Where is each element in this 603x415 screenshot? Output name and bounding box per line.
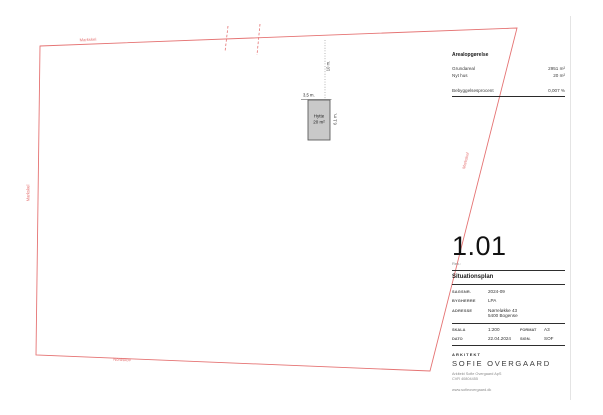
field-label: ADRESSE bbox=[452, 308, 488, 319]
address-line-2: 5400 Bogense bbox=[488, 313, 565, 319]
architect-block: ARKITEKT SOFIE OVERGAARD Arkitekt Sofie … bbox=[452, 352, 565, 392]
field-label: DATO bbox=[452, 336, 488, 342]
area-result-label: Bebyggelsesprocent bbox=[452, 87, 494, 94]
field-label: BYGHERRE bbox=[452, 298, 488, 304]
revision-label: Rev.: bbox=[452, 261, 565, 266]
boundary-tick-2 bbox=[257, 24, 260, 55]
drawing-title: Situationsplan bbox=[452, 271, 565, 284]
boundary-label-right: Markskel bbox=[461, 152, 470, 170]
building-area-label: 20 m² bbox=[313, 120, 325, 125]
cvr-line: CVR 40804455 bbox=[452, 377, 565, 382]
area-row-label: Nyt hus bbox=[452, 72, 468, 79]
boundary-label-bottom: Nordskov bbox=[113, 357, 132, 363]
field-label: SAGSNR. bbox=[452, 289, 488, 295]
depth-dimension-label: 6,1 m. bbox=[333, 113, 338, 125]
architect-name: SOFIE OVERGAARD bbox=[452, 359, 565, 368]
info-row-sagsnr: SAGSNR. 2024-09 bbox=[452, 287, 565, 297]
drawing-number: 1.01 bbox=[452, 233, 565, 260]
field-label: FORMAT bbox=[520, 327, 544, 333]
area-row-value: 20 m² bbox=[553, 72, 565, 79]
divider bbox=[452, 323, 565, 324]
field-value: SOF bbox=[544, 336, 565, 342]
meta-row-skala-format: SKALA 1:200 FORMAT A3 bbox=[452, 325, 565, 335]
boundary-label-left: Markskel bbox=[26, 185, 31, 202]
area-row: Grundareal 2951 m² bbox=[452, 65, 565, 72]
area-result-value: 0,007 % bbox=[548, 87, 565, 94]
field-label: SKALA bbox=[452, 327, 488, 333]
divider bbox=[452, 284, 565, 285]
meta-row-dato-sign: DATO 22.04.2024 SIGN. SOF bbox=[452, 334, 565, 344]
property-boundary bbox=[36, 28, 517, 371]
field-value: Nørreløkke 43 5400 Bogense bbox=[488, 308, 565, 319]
architect-role: ARKITEKT bbox=[452, 352, 565, 357]
area-row-label: Grundareal bbox=[452, 65, 475, 72]
field-value: 22.04.2024 bbox=[488, 336, 520, 342]
field-value: LPA bbox=[488, 298, 565, 304]
boundary-label-top: Markskel bbox=[79, 37, 96, 43]
architect-company: Arkitekt Sofie Overgaard ApS CVR 4080445… bbox=[452, 372, 565, 382]
field-value: 2024-09 bbox=[488, 289, 565, 295]
title-block: 1.01 Rev.: Situationsplan SAGSNR. 2024-0… bbox=[452, 233, 565, 392]
width-dimension-label: 3,5 m. bbox=[303, 93, 315, 98]
building-name-label: Hytte bbox=[314, 114, 325, 119]
setback-dimension-label: 10 m. bbox=[326, 61, 331, 71]
info-row-adresse: ADRESSE Nørreløkke 43 5400 Bogense bbox=[452, 306, 565, 321]
field-value: A3 bbox=[544, 327, 565, 333]
architect-website: www.sofieovergaard.dk bbox=[452, 388, 565, 392]
area-result-row: Bebyggelsesprocent 0,007 % bbox=[452, 87, 565, 97]
area-summary-title: Arealopgørelse bbox=[452, 52, 565, 58]
divider bbox=[452, 345, 565, 346]
drawing-sheet: Markskel Markskel Nordskov Markskel 10 m… bbox=[0, 0, 603, 415]
area-row: Nyt hus 20 m² bbox=[452, 72, 565, 79]
info-row-bygherre: BYGHERRE LPA bbox=[452, 296, 565, 306]
field-value: 1:200 bbox=[488, 327, 520, 333]
field-label: SIGN. bbox=[520, 336, 544, 342]
area-summary: Arealopgørelse Grundareal 2951 m² Nyt hu… bbox=[452, 52, 565, 97]
area-row-value: 2951 m² bbox=[548, 65, 565, 72]
